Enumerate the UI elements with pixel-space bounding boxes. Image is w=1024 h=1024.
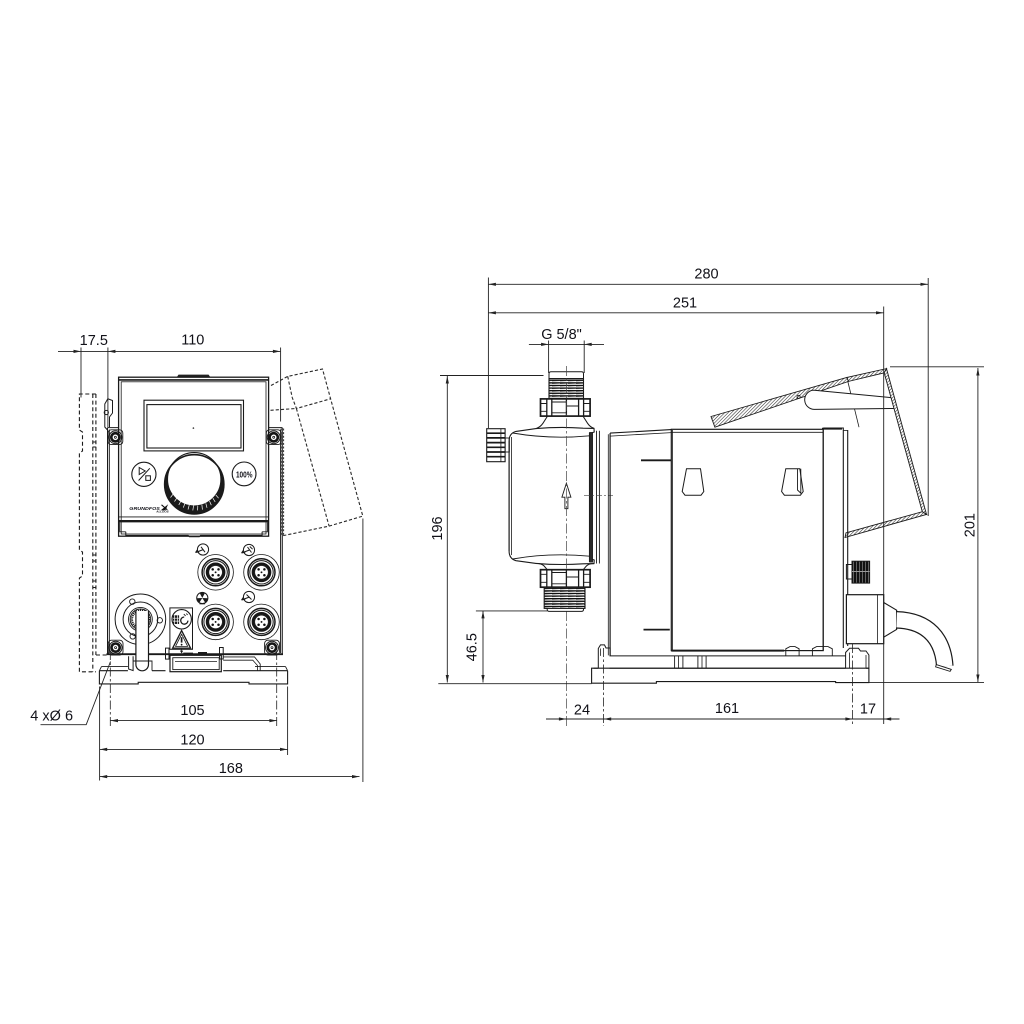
svg-text:201: 201 — [963, 513, 979, 537]
svg-text:120: 120 — [180, 733, 204, 749]
svg-text:251: 251 — [673, 295, 697, 311]
svg-text:110: 110 — [181, 332, 204, 348]
svg-text:ALLDOS: ALLDOS — [155, 510, 168, 514]
svg-text:168: 168 — [219, 761, 243, 777]
svg-text:4 xØ 6: 4 xØ 6 — [30, 708, 73, 724]
svg-text:46.5: 46.5 — [465, 633, 481, 661]
svg-text:17: 17 — [860, 702, 876, 718]
svg-text:105: 105 — [180, 703, 204, 719]
svg-text:161: 161 — [715, 701, 739, 717]
svg-text:24: 24 — [574, 702, 590, 718]
svg-text:100%: 100% — [236, 470, 253, 479]
svg-text:196: 196 — [430, 516, 446, 540]
svg-text:G 5/8": G 5/8" — [541, 327, 582, 343]
svg-text:280: 280 — [694, 267, 718, 283]
svg-text:17.5: 17.5 — [80, 333, 108, 349]
